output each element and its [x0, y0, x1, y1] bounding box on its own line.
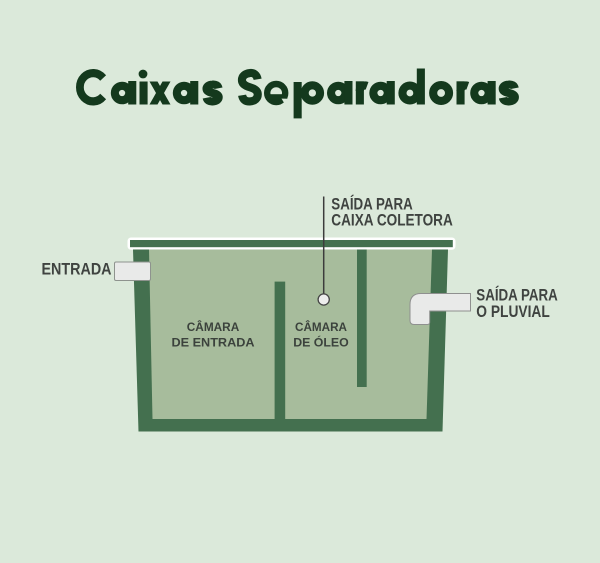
svg-text:ENTRADA: ENTRADA [42, 261, 112, 279]
svg-text:DE ÓLEO: DE ÓLEO [293, 334, 349, 349]
svg-text:O PLUVIAL: O PLUVIAL [476, 303, 550, 321]
svg-text:CÂMARA: CÂMARA [295, 319, 347, 334]
svg-text:DE ENTRADA: DE ENTRADA [172, 335, 255, 349]
svg-text:CÂMARA: CÂMARA [187, 319, 240, 334]
svg-text:SAÍDA PARA: SAÍDA PARA [476, 286, 558, 305]
svg-text:CAIXA COLETORA: CAIXA COLETORA [331, 212, 453, 230]
